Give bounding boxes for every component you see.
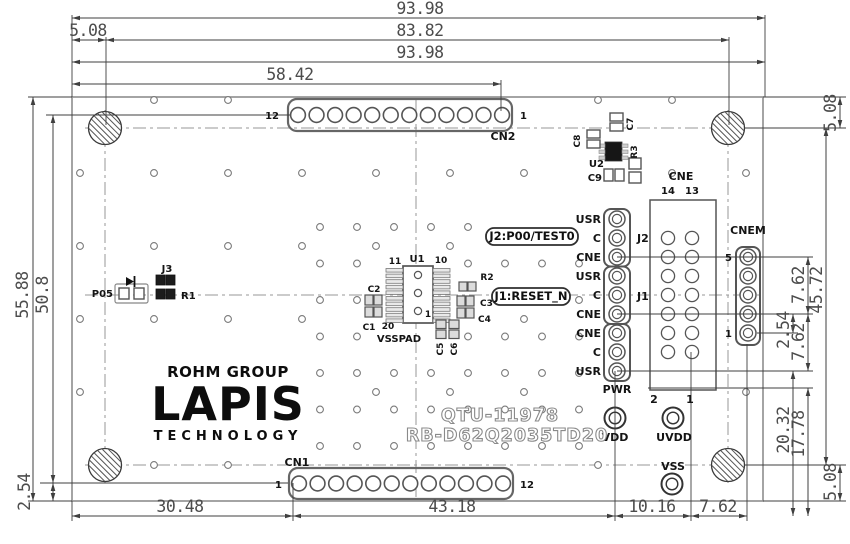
via bbox=[225, 97, 232, 104]
dim-arrow bbox=[72, 82, 80, 87]
via bbox=[521, 170, 528, 177]
dim-hole-span: 83.82 bbox=[396, 21, 443, 40]
via bbox=[317, 260, 324, 267]
via bbox=[354, 297, 361, 304]
component-pad bbox=[449, 320, 459, 329]
component-pad bbox=[604, 169, 613, 181]
u1-pad bbox=[414, 271, 421, 278]
cn1-pin12-label: 12 bbox=[520, 480, 534, 491]
via bbox=[373, 389, 380, 396]
dim-height-total: 55.88 bbox=[13, 271, 32, 318]
jumper-pin-hole bbox=[612, 214, 621, 223]
via bbox=[502, 370, 509, 377]
via bbox=[225, 243, 232, 250]
dim-arrow bbox=[791, 508, 796, 516]
cn2-hole bbox=[328, 108, 343, 123]
component-pad bbox=[365, 295, 373, 305]
cn2-hole bbox=[458, 108, 473, 123]
cn2-hole bbox=[383, 108, 398, 123]
dim-arrow bbox=[31, 97, 36, 105]
cnem-pin-hole bbox=[743, 290, 752, 299]
jumper-pin-hole bbox=[612, 347, 621, 356]
callout-j2-text: J2:P00/TEST0 bbox=[488, 229, 574, 243]
dim-arrow bbox=[806, 257, 811, 265]
lapis-logo-text: LAPIS bbox=[151, 377, 305, 431]
dim-arrow bbox=[72, 16, 80, 21]
u1-pin bbox=[433, 274, 450, 278]
row-label-cne-3: CNE bbox=[576, 327, 601, 340]
component-pad bbox=[610, 123, 623, 131]
via bbox=[373, 243, 380, 250]
row-label-usr-1: USR bbox=[576, 213, 602, 226]
uvdd-label: UVDD bbox=[656, 431, 692, 444]
component-pad bbox=[610, 113, 623, 121]
via bbox=[299, 170, 306, 177]
row-label-usr-3: USR bbox=[576, 365, 602, 378]
via bbox=[317, 333, 324, 340]
row-label-cne-1: CNE bbox=[576, 251, 601, 264]
j1-label: J1 bbox=[636, 290, 649, 303]
cne-hole bbox=[661, 269, 674, 282]
via bbox=[539, 370, 546, 377]
via bbox=[354, 406, 361, 413]
via bbox=[595, 462, 602, 469]
via bbox=[743, 170, 750, 177]
via bbox=[77, 316, 84, 323]
cn2-hole bbox=[346, 108, 361, 123]
jumper-pin-hole bbox=[612, 328, 621, 337]
p05-label: P05 bbox=[92, 289, 113, 300]
u1-pin bbox=[433, 291, 450, 295]
component-pad bbox=[166, 289, 175, 299]
via bbox=[595, 97, 602, 104]
via bbox=[521, 316, 528, 323]
via bbox=[447, 389, 454, 396]
u1-pin bbox=[433, 313, 450, 317]
jumper-pin-hole bbox=[612, 290, 621, 299]
cn1-hole bbox=[292, 476, 307, 491]
r2-label: R2 bbox=[480, 273, 493, 283]
dim-right-cnem-a: 7.62 bbox=[789, 266, 808, 304]
u2-label: U2 bbox=[589, 159, 604, 170]
dim-height-rows: 50.8 bbox=[33, 276, 52, 314]
pcb-dimension-drawing: 93.98 5.08 83.82 93.98 58.42 55.88 50.8 … bbox=[0, 0, 850, 544]
u1-pin bbox=[386, 302, 403, 306]
dim-bottom-2: 43.18 bbox=[428, 497, 475, 516]
cnem-label: CNEM bbox=[730, 224, 766, 237]
cn2-hole bbox=[309, 108, 324, 123]
via bbox=[391, 443, 398, 450]
u1-pin bbox=[433, 302, 450, 306]
mounting-hole bbox=[89, 449, 122, 482]
via bbox=[299, 243, 306, 250]
cnem-pin1-label: 1 bbox=[725, 329, 732, 340]
dim-arrow bbox=[757, 60, 765, 65]
u1-pin20-label: 20 bbox=[382, 322, 395, 332]
via bbox=[465, 333, 472, 340]
j3-label: J3 bbox=[161, 264, 173, 275]
cne-pin1-label: 1 bbox=[686, 393, 694, 406]
dim-arrow bbox=[293, 514, 301, 519]
cn1-hole bbox=[310, 476, 325, 491]
dim-arrow bbox=[806, 388, 811, 396]
dim-arrow bbox=[791, 371, 796, 379]
technology-logo-text: TECHNOLOGY bbox=[154, 429, 303, 444]
cn1-hole bbox=[421, 476, 436, 491]
via bbox=[743, 389, 750, 396]
dim-arrow bbox=[691, 514, 699, 519]
component-pad bbox=[459, 282, 467, 291]
component-pad bbox=[436, 330, 446, 339]
vss-label: VSS bbox=[661, 460, 685, 473]
via bbox=[373, 170, 380, 177]
via bbox=[151, 243, 158, 250]
board-part-number-text: RB-D62Q2035TD20 bbox=[406, 426, 608, 446]
u1-pin bbox=[386, 274, 403, 278]
pwr-label: PWR bbox=[603, 383, 632, 396]
u1-label: U1 bbox=[409, 254, 424, 265]
via bbox=[354, 370, 361, 377]
u1-pin bbox=[386, 285, 403, 289]
cn1-hole bbox=[477, 476, 492, 491]
cne-hole bbox=[661, 231, 674, 244]
via bbox=[521, 389, 528, 396]
cnem-pin-hole bbox=[743, 271, 752, 280]
cne-hole bbox=[685, 326, 698, 339]
component-pad bbox=[466, 296, 474, 306]
u1-pin bbox=[386, 291, 403, 295]
power-pad-hole bbox=[667, 412, 679, 424]
cn1-hole bbox=[329, 476, 344, 491]
via bbox=[428, 406, 435, 413]
c7-label: C7 bbox=[626, 118, 636, 131]
cn1-label: CN1 bbox=[285, 456, 310, 469]
via bbox=[151, 170, 158, 177]
component-pad bbox=[629, 158, 641, 169]
callout-j1-text: J1:RESET_N bbox=[494, 289, 568, 304]
via bbox=[428, 370, 435, 377]
via bbox=[576, 297, 583, 304]
dim-arrow bbox=[615, 514, 623, 519]
via bbox=[317, 370, 324, 377]
component-pad bbox=[457, 296, 465, 306]
dim-right-b: 17.78 bbox=[789, 410, 808, 457]
via bbox=[225, 170, 232, 177]
cn1-hole bbox=[384, 476, 399, 491]
dim-arrow bbox=[51, 493, 56, 501]
u1-pin bbox=[433, 297, 450, 301]
u1-pad bbox=[414, 307, 421, 314]
c1-label: C1 bbox=[363, 323, 376, 333]
dim-arrow bbox=[721, 38, 729, 43]
via bbox=[539, 333, 546, 340]
via bbox=[317, 406, 324, 413]
via bbox=[447, 170, 454, 177]
cnem-pin-hole bbox=[743, 328, 752, 337]
dim-arrow bbox=[607, 514, 615, 519]
via bbox=[77, 243, 84, 250]
via bbox=[465, 224, 472, 231]
u1-pin11-label: 11 bbox=[389, 257, 402, 267]
dim-arrow bbox=[72, 60, 80, 65]
dim-arrow bbox=[683, 514, 691, 519]
mounting-hole bbox=[712, 449, 745, 482]
via bbox=[539, 260, 546, 267]
via bbox=[151, 97, 158, 104]
via bbox=[354, 443, 361, 450]
c6-label: C6 bbox=[450, 343, 460, 356]
cn1-hole bbox=[366, 476, 381, 491]
u1-pin bbox=[386, 313, 403, 317]
component-pad bbox=[436, 320, 446, 329]
dim-arrow bbox=[51, 115, 56, 123]
r1-label: R1 bbox=[181, 291, 196, 302]
via bbox=[354, 260, 361, 267]
cn2-hole bbox=[420, 108, 435, 123]
component-pad bbox=[466, 308, 474, 318]
board-code-text: QTU-11978 bbox=[441, 406, 559, 426]
via bbox=[354, 224, 361, 231]
via bbox=[391, 370, 398, 377]
row-label-c-2: C bbox=[593, 289, 601, 302]
u2-pad bbox=[622, 156, 628, 160]
component-pad bbox=[374, 295, 382, 305]
mounting-hole bbox=[712, 112, 745, 145]
mounting-hole bbox=[89, 112, 122, 145]
dim-bottom-1: 30.48 bbox=[156, 497, 203, 516]
component-pad bbox=[457, 308, 465, 318]
cne-hole bbox=[661, 288, 674, 301]
dim-arrow bbox=[106, 38, 114, 43]
c5-label: C5 bbox=[436, 343, 446, 356]
cne-pin14-label: 14 bbox=[661, 186, 675, 197]
u1-pin bbox=[433, 285, 450, 289]
component-pad bbox=[468, 282, 476, 291]
component-pad bbox=[156, 275, 165, 285]
row-label-c-3: C bbox=[593, 346, 601, 359]
u2-pad bbox=[622, 150, 628, 154]
cne-hole bbox=[685, 269, 698, 282]
via bbox=[317, 443, 324, 450]
jumper-pin-hole bbox=[612, 233, 621, 242]
u1-pin bbox=[386, 269, 403, 273]
u1-pin bbox=[433, 308, 450, 312]
via bbox=[77, 170, 84, 177]
via bbox=[391, 406, 398, 413]
via bbox=[77, 389, 84, 396]
component-pad bbox=[615, 169, 624, 181]
dim-arrow bbox=[806, 314, 811, 322]
cn2-hole bbox=[439, 108, 454, 123]
cn1-hole bbox=[496, 476, 511, 491]
via bbox=[428, 224, 435, 231]
cne-pin13-label: 13 bbox=[685, 186, 699, 197]
c8-label: C8 bbox=[573, 135, 583, 148]
cn1-hole bbox=[403, 476, 418, 491]
dim-bottom-3: 10.16 bbox=[628, 497, 675, 516]
component-pad bbox=[587, 140, 600, 148]
via bbox=[225, 462, 232, 469]
u1-pin1-label: 1 bbox=[425, 310, 431, 320]
dim-arrow bbox=[806, 363, 811, 371]
cn2-hole bbox=[402, 108, 417, 123]
via bbox=[225, 316, 232, 323]
cn2-label: CN2 bbox=[491, 130, 516, 143]
dim-arrow bbox=[493, 82, 501, 87]
via bbox=[299, 316, 306, 323]
cne-hole bbox=[685, 231, 698, 244]
component-pad bbox=[119, 288, 129, 299]
r3-label: R3 bbox=[630, 145, 640, 158]
via bbox=[502, 333, 509, 340]
row-label-usr-2: USR bbox=[576, 270, 602, 283]
u1-pad bbox=[414, 289, 421, 296]
cn2-pin1-label: 1 bbox=[520, 111, 527, 122]
component-pad bbox=[365, 307, 373, 317]
jumper-pin-hole bbox=[612, 271, 621, 280]
u2-pad bbox=[599, 150, 605, 154]
component-pad bbox=[587, 130, 600, 138]
via bbox=[151, 462, 158, 469]
u2-body bbox=[605, 142, 622, 161]
power-pad-hole bbox=[666, 478, 678, 490]
dim-cn1-offset: 2.54 bbox=[15, 473, 34, 511]
cn2-hole bbox=[495, 108, 510, 123]
c9-label: C9 bbox=[588, 173, 602, 184]
dim-arrow bbox=[72, 514, 80, 519]
via bbox=[465, 370, 472, 377]
component-pad bbox=[156, 289, 165, 299]
cne-hole bbox=[661, 345, 674, 358]
via bbox=[576, 406, 583, 413]
dim-margin-left: 5.08 bbox=[69, 21, 107, 40]
dim-right-top-margin: 5.08 bbox=[821, 94, 840, 132]
cne-label: CNE bbox=[669, 170, 694, 183]
dim-arrow bbox=[51, 483, 56, 491]
cn1-pin1-label: 1 bbox=[275, 480, 282, 491]
row-label-c-1: C bbox=[593, 232, 601, 245]
dim-right-hole-span: 45.72 bbox=[807, 266, 826, 313]
dim-arrow bbox=[806, 508, 811, 516]
cne-hole bbox=[685, 288, 698, 301]
cn1-hole bbox=[459, 476, 474, 491]
cn2-hole bbox=[291, 108, 306, 123]
via bbox=[151, 316, 158, 323]
component-pad bbox=[449, 330, 459, 339]
c4-label: C4 bbox=[478, 315, 491, 325]
j2-label: J2 bbox=[636, 232, 649, 245]
dim-arrow bbox=[51, 475, 56, 483]
u1-pin bbox=[386, 297, 403, 301]
via bbox=[669, 97, 676, 104]
via bbox=[391, 224, 398, 231]
via bbox=[465, 260, 472, 267]
dim-cn2-offset: 58.42 bbox=[266, 65, 313, 84]
row-label-cne-2: CNE bbox=[576, 308, 601, 321]
c2-label: C2 bbox=[368, 285, 381, 295]
dim-arrow bbox=[757, 16, 765, 21]
cn2-hole bbox=[476, 108, 491, 123]
cn2-pin12-label: 12 bbox=[265, 111, 279, 122]
component-pad bbox=[629, 172, 641, 183]
via bbox=[317, 224, 324, 231]
component-pad bbox=[166, 275, 175, 285]
u1-pin bbox=[433, 269, 450, 273]
via bbox=[502, 260, 509, 267]
dim-right-bottom-margin: 5.08 bbox=[821, 463, 840, 501]
u1-pin bbox=[386, 308, 403, 312]
via bbox=[447, 243, 454, 250]
u1-pin bbox=[386, 280, 403, 284]
dim-width-total-2: 93.98 bbox=[396, 43, 443, 62]
dim-bottom-4: 7.62 bbox=[699, 497, 737, 516]
cn2-hole bbox=[365, 108, 380, 123]
cne-hole bbox=[685, 345, 698, 358]
dim-right-cnem-b: 7.62 bbox=[789, 323, 808, 361]
cne-hole bbox=[661, 326, 674, 339]
u1-pin10-label: 10 bbox=[435, 256, 448, 266]
vsspad-label: VSSPAD bbox=[377, 334, 421, 345]
u2-pad bbox=[622, 144, 628, 148]
cne-pin2-label: 2 bbox=[650, 393, 658, 406]
dim-arrow bbox=[739, 514, 747, 519]
via bbox=[317, 297, 324, 304]
via bbox=[354, 333, 361, 340]
component-pad bbox=[134, 288, 144, 299]
cn1-hole bbox=[347, 476, 362, 491]
dim-width-total-1: 93.98 bbox=[396, 0, 443, 18]
cnem-pin5-label: 5 bbox=[725, 253, 732, 264]
u1-pin bbox=[433, 280, 450, 284]
drawing-canvas: 93.98 5.08 83.82 93.98 58.42 55.88 50.8 … bbox=[0, 0, 850, 544]
cn1-hole bbox=[440, 476, 455, 491]
component-pad bbox=[374, 307, 382, 317]
c3-label: C3 bbox=[480, 299, 493, 309]
dim-arrow bbox=[285, 514, 293, 519]
